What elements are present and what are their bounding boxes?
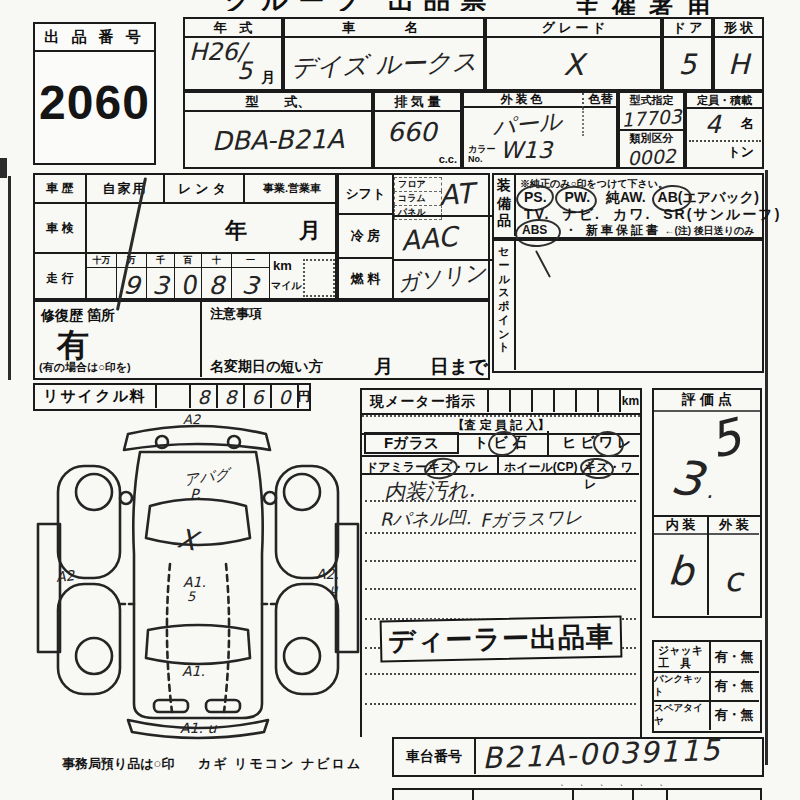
stone-chip-option[interactable]: トビ石 [474,434,532,452]
name-change-deadline-label: 名変期日の短い方 [210,358,323,376]
score-digit-3: 3 [667,448,707,508]
class-division-value: 0002 [619,143,683,169]
mileage-label-cell: 走 行 [35,254,87,302]
mileage-km-unit: km [273,258,292,273]
crack-option[interactable]: ヒビワレ [562,434,635,452]
meter-cell-2[interactable] [509,390,531,412]
sheet-title-cut: グループ 出品票 [225,0,570,11]
partial-divider-1 [472,790,474,800]
interior-grade: b [666,547,695,595]
score-label: 評 価 点 [654,390,760,412]
year-cell: 年 式 H26/ 5 月 [183,17,283,91]
mileage-col-100k: 十万 [87,254,117,302]
class-division-label: 類別区分 [620,129,683,145]
spare-tire-label: スペアタイヤ [654,700,709,730]
equipment-cert: ・ 新車保証書 [565,223,661,237]
mileage-col-1: 一 3 [232,254,270,302]
note-line-4 [365,588,636,590]
note-line-2 [365,532,636,534]
score-digit-5: 5 [704,407,747,469]
equipment-abs[interactable]: ABS [522,223,547,237]
interior-exterior-divider [707,517,709,615]
door-mirror-label: ドアミラー [366,459,427,476]
annotation-hood-line2: P. [190,486,201,502]
shift-ac-fuel-block: シフト フロア コラム パネル AT 冷 房 AAC 燃 料 ガソリン [337,173,490,300]
annotation-left-a2: A2 [55,567,75,585]
office-items: カギ リモコン ナビロム [198,756,362,771]
caution-label: 注意事項 [210,305,262,323]
displacement-value: 660 [387,117,437,147]
capacity-label: 定員・積載 [687,93,762,109]
caution-cell: 注意事項 名変期日の短い方 月 日まで [202,302,490,377]
shaken-month-unit: 月 [299,216,321,246]
meter-cell-5[interactable] [575,390,597,412]
interior-label: 内 装 [654,517,707,535]
year-month-unit: 月 [261,69,275,87]
shift-option-column[interactable]: コラム [394,191,442,205]
assessor-note-2b: Fガラスワレ [480,505,583,533]
scan-artifact-corner [0,158,7,178]
mileage-header-10: 十 [202,254,231,268]
puncture-kit-label: パンクキット [654,671,709,700]
scan-artifact-left [8,176,11,380]
displacement-cell: 排 気 量 660 c.c. [373,91,462,169]
mirror-kizu-circled: キズ [428,460,453,474]
note-line-1 [365,500,636,502]
spare-tire-value[interactable]: 有・無 [709,700,759,730]
fuel-label: 燃 料 [339,259,392,298]
meter-unit: km [619,390,640,412]
ac-label: 冷 房 [339,215,392,257]
fglass-row-divider [547,431,549,457]
mileage-mile-unit: マイル [271,279,302,293]
wheel-kizu-circled: キズ [584,460,609,474]
type-designation-cell: 型式指定 17703 類別区分 0002 [618,91,685,169]
stone-char-2-circled: ビ [493,434,512,450]
bottom-partial-row [392,788,762,800]
color-no-value: W13 [500,137,552,163]
chassis-row: 車台番号 B21A-0039115 [392,737,764,777]
shaken-label-cell: 車 検 [35,204,87,254]
wheel-label: ホイール(CP) [504,459,578,476]
repair-cell: 修復歴 箇所 有 (有の場合は○印を) [35,302,202,377]
door-label: ド ア [664,19,711,38]
equipment-ps[interactable]: PS. [520,189,551,205]
repair-caution-band: 修復歴 箇所 有 (有の場合は○印を) 注意事項 名変期日の短い方 月 日まで [33,300,490,380]
meter-cell-4[interactable] [553,390,575,412]
jack-tools-value[interactable]: 有・無 [709,642,759,671]
equipment-ab[interactable]: AB [658,189,678,205]
displacement-label: 排 気 量 [375,93,460,112]
capacity-unit: 名 [741,115,754,133]
year-month-value: 5 [237,57,252,85]
sales-point-label: セールスポイント [494,241,516,370]
shaken-value-cell[interactable]: 年 月 [87,204,339,254]
crack-char-1: ヒ [562,434,580,450]
puncture-kit-value[interactable]: 有・無 [709,671,759,700]
exterior-grade: c [724,560,742,599]
partial-divider-4 [666,790,668,800]
shift-option-panel[interactable]: パネル [394,205,442,220]
fglass-label: Fガラス [364,432,459,454]
handwritten-tail-stroke [535,250,551,277]
displacement-unit: c.c. [439,153,457,165]
meter-cell-3[interactable] [531,390,553,412]
sales-point-box[interactable]: セールスポイント [492,239,764,373]
recycle-digit-2: 8 [216,385,243,408]
equipment-kawa[interactable]: カワ. [613,206,652,222]
car-name-value: デイズ ルークス [284,35,484,94]
mileage-unit-checkbox[interactable] [303,259,335,297]
annotation-below-a1u: A1. u [180,720,216,736]
copy-designation: 主催者用 [575,0,770,15]
model-code-label: 型 式、 [185,93,371,112]
fuel-value: ガソリン [395,257,488,299]
lot-number-box: 出 品 番 号 2060 [33,22,156,165]
color-no-label: カラーNo. [468,145,496,165]
deadline-day-unit: 日まで [430,354,488,380]
grade-cell: グ レ ー ド X [485,17,662,91]
repair-note: (有の場合は○印を) [39,360,131,375]
chassis-value: B21A-0039115 [481,733,722,775]
mileage-digit-100: 0 [173,266,203,303]
history-label-cell: 車 歴 [35,175,87,204]
capacity-cell: 定員・積載 4 名 トン [685,91,764,169]
exterior-label: 外 装 [709,517,759,535]
history-commercial[interactable]: 事業.営業車 [245,175,339,204]
copy-designation-text: 主催者用 [575,0,770,15]
mileage-label: 走 行 [35,254,85,302]
assessor-panel: 【査 定 員 記 入】 Fガラス トビ石 ヒビワレ ドアミラー キズ・ワレ ホイ… [360,415,642,737]
year-label: 年 式 [185,19,281,38]
ac-value: AAC [400,221,459,257]
mirror-wheel-divider [497,457,499,475]
grade-value: X [487,38,660,90]
mileage-col-1k: 千 3 [147,254,175,302]
meter-cell-1[interactable] [487,390,509,412]
door-mirror-damage[interactable]: キズ・ワレ [428,459,489,476]
ac-label-cell: 冷 房 [339,215,394,259]
type-designation-value: 17703 [619,105,683,131]
chassis-label: 車台番号 [394,739,476,774]
equipment-box: 装備品 ※純正のみ○印をつけて下さい。 PS. PW. 純AW. AB(エアバッ… [492,173,764,239]
history-block: 車 歴 自家用 レンタ 事業.営業車 車 検 年 月 走 行 十万 万 9 千 … [33,173,337,300]
shift-label: シフト [339,175,392,213]
shift-option-floor[interactable]: フロア [394,177,442,191]
annotation-center-a1: A1. [183,574,206,590]
fglass-row: Fガラス トビ石 ヒビワレ [362,431,639,457]
recycle-digit-3: 6 [243,385,270,408]
exterior-color-cell: 外装色 色替 パール カラーNo. W13 [462,91,618,169]
recycle-fee-row: リサイクル料 8 8 6 0 円 [33,383,311,411]
mileage-col-10: 十 8 [202,254,232,302]
grade-label: グ レ ー ド [487,19,660,38]
meter-label: 現メーター指示 [370,393,476,411]
mileage-col-100: 百 0 [175,254,202,302]
shift-row-divider [394,215,492,217]
lot-number-value: 2060 [35,52,154,152]
jack-tools-label: ジャッキ 工 具 [658,644,703,669]
model-code-cell: 型 式、 DBA-B21A [183,91,373,169]
equipment-line1: PS. PW. 純AW. AB(エアバック) [520,189,759,207]
scan-artifact-right [765,170,768,765]
exterior-color-label: 外装色 [464,93,582,108]
equipment-cert-note: ←(注) 後日送りのみ [664,225,754,236]
shaken-year-unit: 年 [225,216,247,246]
shift-label-cell: シフト [339,175,394,215]
history-private[interactable]: 自家用 [87,175,165,204]
recycle-fee-label: リサイクル料 [35,385,155,408]
mileage-digit-100k [87,268,116,302]
capacity-value: 4 [705,110,721,139]
annotation-bottom-a1: A1. [182,663,205,679]
annotation-center-5b: 5 [187,589,195,604]
meter-box: 現メーター指示 km [360,388,642,415]
score-dot: . [706,478,713,503]
dealer-stamp-text: ディーラー出品車 [388,619,615,660]
jack-label-line1: ジャッキ [658,644,703,657]
partial-divider-2 [572,790,574,800]
equipment-navi[interactable]: ナビ. [562,206,601,222]
jack-label-line2: 工 具 [658,657,703,670]
equipment-line3: ABS ・ 新車保証書 ←(注) 後日送りのみ [522,222,755,239]
lot-number-label: 出 品 番 号 [35,24,154,52]
annotation-right-u: u [330,582,338,596]
note-line-8 [365,703,636,705]
door-cell: ド ア 5 [662,17,713,91]
assessor-note-2a: Rパネル凹. [380,506,472,532]
mileage-header-1k: 千 [147,254,174,268]
shift-options: フロア コラム パネル [394,177,442,213]
sheet-title-text: グループ 出品票 [225,0,570,11]
shape-value: H [715,38,762,90]
mileage-digit-10: 8 [202,268,231,302]
history-rental[interactable]: レンタ [165,175,245,204]
recycle-blank-cell [155,385,189,408]
dealer-stamp: ディーラー出品車 [380,615,623,662]
equipment-sr[interactable]: SR(サンルーフ) [663,206,781,222]
ac-row-divider [394,259,492,261]
office-note: 事務局預り品は○印 [62,756,174,771]
capacity-divider [689,140,761,142]
color-change-divider [582,108,584,136]
wheel-damage[interactable]: キズ・ワレ [584,459,639,493]
deadline-month-unit: 月 [374,354,393,380]
mileage-digit-1k: 3 [146,267,175,303]
fuel-label-cell: 燃 料 [339,259,394,298]
ton-label: トン [727,143,754,161]
equipment-aw[interactable]: 純AW. [606,189,646,205]
car-name-cell: 車 名 デイズ ルークス [283,17,485,91]
recycle-digit-1: 8 [189,385,216,408]
door-value: 5 [664,38,711,90]
shaken-label: 車 検 [35,204,85,252]
color-change-label: 色替 [582,93,617,108]
meter-cell-6[interactable] [597,390,619,412]
equipment-pw[interactable]: PW. [560,189,594,205]
tools-box: ジャッキ 工 具 有・無 パンクキット 有・無 スペアタイヤ 有・無 [652,640,762,733]
repair-label: 修復歴 箇所 [41,307,115,325]
mileage-digit-1: 3 [230,266,271,305]
auction-sheet: グループ 出品票 主催者用 出 品 番 号 2060 年 式 H26/ 5 月 … [0,0,800,800]
history-label: 車 歴 [35,175,85,202]
office-note-line: 事務局預り品は○印 カギ リモコン ナビロム [62,755,362,773]
annotation-top-a2: A2 [183,412,200,427]
annotation-right-a2: A2. [316,566,339,582]
shape-label: 形 状 [715,19,762,38]
recycle-unit: 円 [297,385,309,408]
note-line-7 [365,673,636,675]
mirror-wheel-row: ドアミラー キズ・ワレ ホイール(CP) キズ・ワレ [362,457,639,475]
shape-cell: 形 状 H [713,17,764,91]
crack-char-3-circled: ワ [599,434,617,450]
shift-value: AT [438,177,474,212]
recycle-digit-4: 0 [270,385,297,408]
partial-divider-3 [632,790,634,800]
note-line-3 [365,560,636,562]
score-box: 評 価 点 3 . 5 内 装 外 装 b c [652,388,762,618]
mileage-header-100k: 十万 [87,254,116,268]
equipment-label: 装備品 [494,175,516,236]
model-code-value: DBA-B21A [185,110,372,169]
